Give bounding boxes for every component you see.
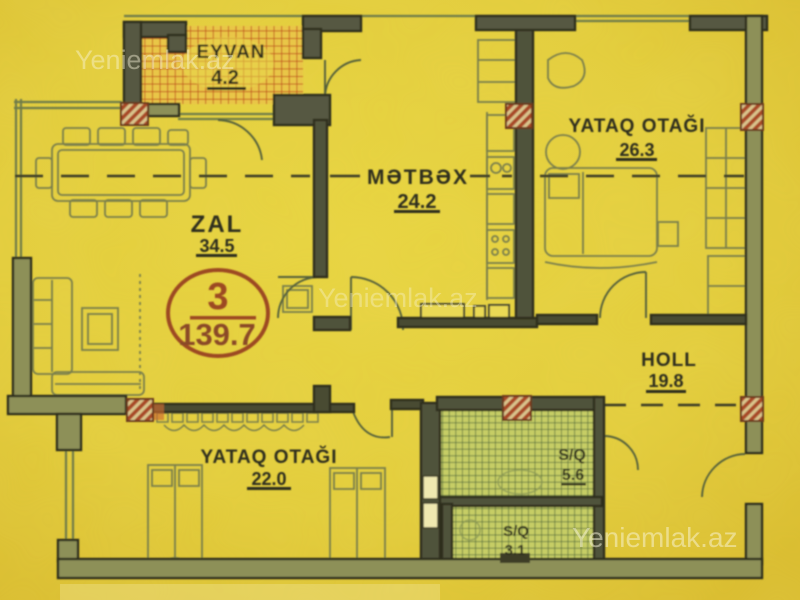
svg-text:Yeniemlak.az: Yeniemlak.az xyxy=(318,283,478,313)
svg-text:Yeniemlak.az: Yeniemlak.az xyxy=(75,45,235,75)
svg-text:3.1: 3.1 xyxy=(505,542,526,559)
svg-text:34.5: 34.5 xyxy=(199,236,234,256)
svg-text:19.8: 19.8 xyxy=(648,371,683,391)
svg-text:S/Q: S/Q xyxy=(503,523,529,540)
svg-text:ZAL: ZAL xyxy=(191,211,244,238)
svg-text:Yeniemlak.az: Yeniemlak.az xyxy=(572,522,738,553)
svg-text:YATAQ OTAĞI: YATAQ OTAĞI xyxy=(201,446,338,468)
svg-text:HOLL: HOLL xyxy=(641,350,697,371)
svg-text:26.3: 26.3 xyxy=(619,140,654,160)
svg-text:139.7: 139.7 xyxy=(178,317,256,352)
svg-text:YATAQ OTAĞI: YATAQ OTAĞI xyxy=(569,115,706,137)
svg-text:MƏTBƏX: MƏTBƏX xyxy=(367,166,469,189)
svg-text:5.6: 5.6 xyxy=(562,467,584,484)
svg-text:24.2: 24.2 xyxy=(398,191,437,213)
svg-text:22.0: 22.0 xyxy=(251,469,286,489)
svg-text:3: 3 xyxy=(207,276,228,318)
svg-text:S/Q: S/Q xyxy=(558,447,586,464)
